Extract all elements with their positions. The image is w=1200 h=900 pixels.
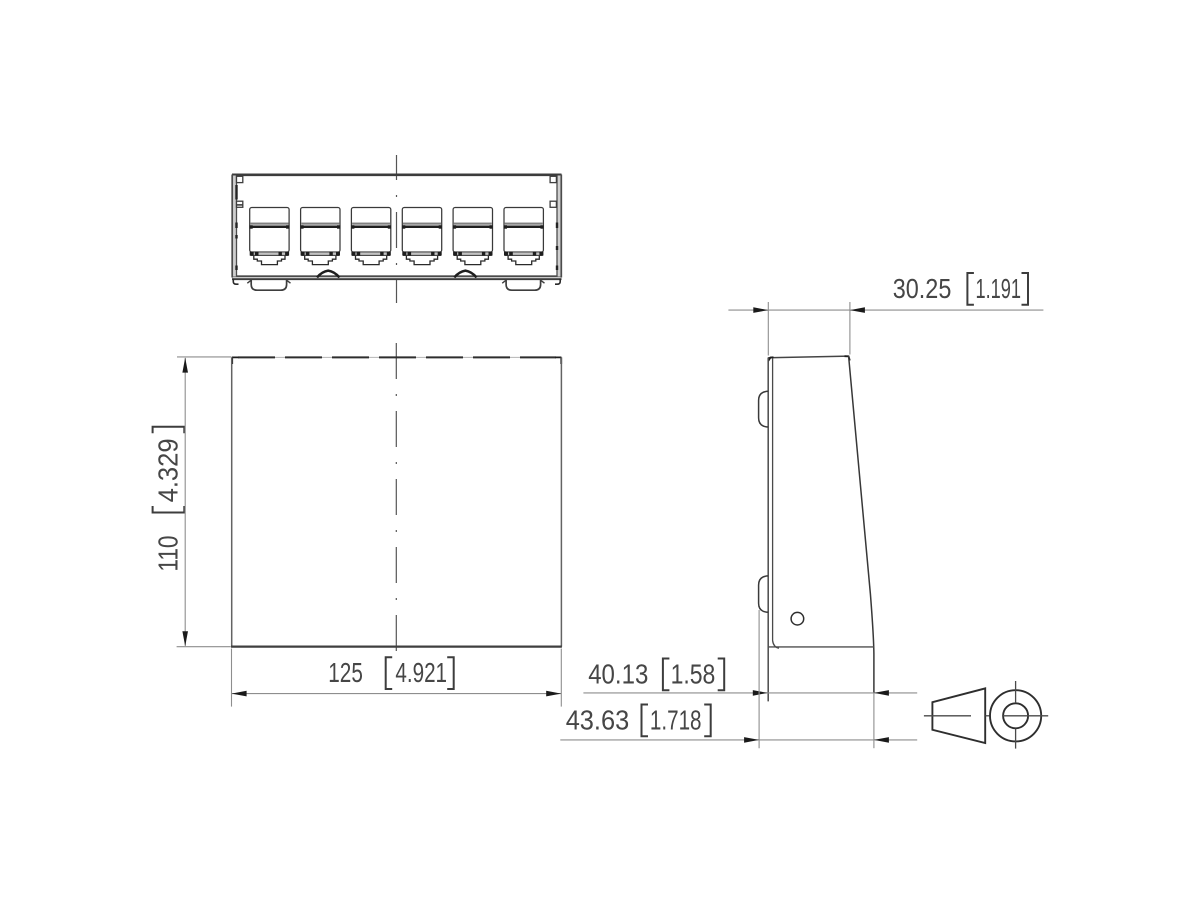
svg-text:30.25: 30.25 [893,274,952,304]
svg-text:1.58: 1.58 [671,660,716,690]
svg-text:1.191: 1.191 [976,273,1022,304]
svg-text:110: 110 [153,535,184,571]
svg-text:4.329: 4.329 [153,438,184,502]
svg-text:40.13: 40.13 [588,660,648,690]
svg-text:1.718: 1.718 [650,706,702,737]
svg-text:4.921: 4.921 [395,658,447,689]
svg-text:125: 125 [328,658,363,689]
svg-text:43.63: 43.63 [566,704,630,735]
